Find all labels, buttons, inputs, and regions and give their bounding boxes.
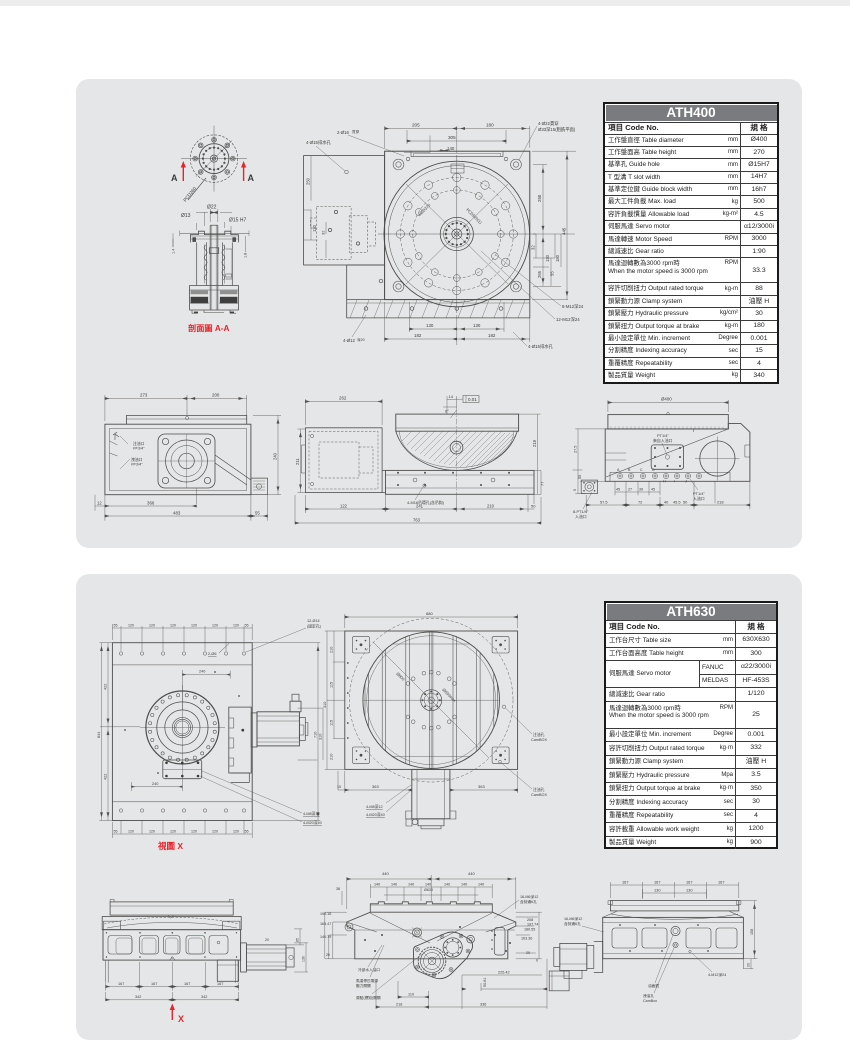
svg-text:PF3/4": PF3/4" [131, 463, 143, 467]
svg-text:844: 844 [97, 732, 101, 738]
svg-text:167: 167 [217, 982, 223, 986]
svg-text:167: 167 [686, 880, 693, 885]
svg-text:含刻通6孔: 含刻通6孔 [564, 921, 581, 926]
svg-text:130: 130 [302, 956, 306, 962]
svg-text:32: 32 [531, 245, 536, 250]
svg-text:CamBOX: CamBOX [531, 738, 548, 742]
svg-text:C: C [640, 468, 643, 472]
svg-text:32: 32 [321, 230, 326, 235]
svg-text:167: 167 [622, 880, 629, 885]
svg-text:140: 140 [444, 883, 450, 887]
svg-text:120: 120 [212, 830, 218, 834]
svg-text:211: 211 [295, 458, 300, 465]
svg-text:4-Ø15排水孔: 4-Ø15排水孔 [528, 343, 554, 350]
svg-text:218: 218 [717, 500, 724, 505]
svg-text:265: 265 [537, 270, 542, 278]
svg-text:壓力開關: 壓力開關 [356, 983, 371, 988]
svg-text:55: 55 [578, 475, 582, 479]
svg-text:Ø400: Ø400 [661, 397, 672, 402]
svg-text:A: A [248, 173, 255, 183]
svg-text:240: 240 [199, 670, 205, 674]
svg-text:45.5: 45.5 [673, 500, 681, 505]
svg-text:深20: 深20 [357, 337, 365, 342]
svg-text:2-Ø16: 2-Ø16 [337, 130, 350, 135]
svg-text:Ø15 H7: Ø15 H7 [229, 218, 246, 224]
svg-text:363: 363 [372, 784, 379, 789]
svg-text:140.79: 140.79 [320, 935, 331, 939]
svg-text:55: 55 [255, 511, 260, 516]
svg-text:4-Ø12: 4-Ø12 [343, 338, 356, 343]
svg-text:422: 422 [104, 684, 108, 690]
svg-text:363: 363 [478, 784, 485, 789]
svg-text:PCD260: PCD260 [182, 186, 197, 203]
svg-text:38: 38 [336, 887, 340, 891]
svg-text:14: 14 [449, 394, 454, 399]
svg-text:20: 20 [326, 953, 330, 957]
svg-text:注油口: 注油口 [133, 441, 145, 446]
svg-text:130: 130 [473, 323, 481, 328]
svg-text:55: 55 [114, 830, 118, 834]
svg-text:366: 366 [147, 501, 155, 506]
svg-text:57.5: 57.5 [600, 500, 608, 505]
svg-text:165.47: 165.47 [320, 922, 331, 926]
svg-text:4-M12深24: 4-M12深24 [708, 972, 726, 977]
svg-text:342: 342 [135, 995, 141, 999]
svg-text:110: 110 [408, 993, 414, 997]
svg-text:4-M20深40: 4-M20深40 [303, 820, 322, 825]
svg-text:CamBOX: CamBOX [531, 793, 548, 797]
svg-text:140: 140 [425, 883, 431, 887]
svg-text:20: 20 [526, 951, 530, 955]
svg-text:含刻通6孔: 含刻通6孔 [520, 899, 537, 904]
svg-text:16-M6深12: 16-M6深12 [564, 916, 582, 921]
svg-text:120: 120 [149, 830, 155, 834]
svg-text:15: 15 [337, 785, 341, 789]
svg-text:45: 45 [651, 488, 655, 492]
svg-text:440: 440 [468, 871, 475, 876]
svg-text:250: 250 [537, 194, 542, 202]
svg-text:Ø630: Ø630 [424, 888, 433, 892]
svg-text:4-M16吊環孔(含吊鈎): 4-M16吊環孔(含吊鈎) [407, 500, 445, 505]
svg-text:A: A [171, 173, 178, 183]
svg-text:12-M12深24: 12-M12深24 [556, 316, 580, 323]
svg-text:油面鏡: 油面鏡 [648, 983, 659, 988]
svg-text:219: 219 [532, 439, 537, 447]
svg-text:120: 120 [170, 830, 176, 834]
svg-text:710: 710 [314, 732, 318, 738]
svg-text:120: 120 [128, 830, 134, 834]
svg-text:305: 305 [448, 135, 456, 140]
svg-text:120: 120 [149, 624, 155, 628]
svg-text:225.42: 225.42 [498, 971, 510, 975]
svg-text:PF3/4": PF3/4" [133, 447, 145, 451]
svg-text:72: 72 [638, 500, 642, 505]
svg-text:I: I [674, 480, 675, 484]
svg-text:4-M8深16: 4-M8深16 [303, 811, 320, 816]
svg-text:167: 167 [184, 982, 190, 986]
svg-text:50: 50 [683, 500, 688, 505]
svg-text:1.8: 1.8 [244, 253, 248, 258]
svg-text:4-M8深12: 4-M8深12 [366, 804, 383, 809]
svg-text:120: 120 [191, 624, 197, 628]
svg-text:27: 27 [628, 488, 632, 492]
svg-text:X: X [178, 1014, 184, 1024]
svg-text:483: 483 [173, 511, 181, 516]
svg-text:CamBox: CamBox [643, 999, 657, 1003]
svg-text:77: 77 [540, 481, 545, 486]
svg-text:240: 240 [152, 782, 158, 786]
svg-text:140: 140 [461, 883, 467, 887]
svg-text:來自入油口: 來自入油口 [653, 438, 673, 443]
svg-text:85: 85 [296, 938, 300, 942]
svg-text:12: 12 [97, 501, 102, 506]
svg-text:422: 422 [104, 774, 108, 780]
svg-text:200: 200 [212, 393, 220, 398]
svg-text:PCD520(1): PCD520(1) [465, 207, 483, 225]
svg-text:205: 205 [412, 123, 420, 128]
svg-text:167: 167 [718, 880, 725, 885]
svg-text:120: 120 [233, 624, 239, 628]
svg-text:310: 310 [323, 702, 327, 708]
svg-text:Ø33深15(粗銑平面): Ø33深15(粗銑平面) [538, 126, 576, 133]
svg-text:140: 140 [478, 883, 484, 887]
svg-text:273: 273 [140, 393, 148, 398]
svg-text:120: 120 [233, 830, 239, 834]
svg-text:27.5: 27.5 [574, 446, 578, 453]
svg-text:120: 120 [212, 624, 218, 628]
svg-text:122: 122 [340, 504, 348, 509]
svg-text:336: 336 [480, 1003, 486, 1007]
svg-text:130: 130 [545, 254, 550, 262]
svg-text:貫穿: 貫穿 [352, 129, 360, 134]
svg-text:冷卻水入油口: 冷卻水入油口 [358, 967, 380, 972]
svg-text:18-M6深12: 18-M6深12 [520, 894, 538, 899]
svg-text:55: 55 [245, 624, 249, 628]
svg-text:39: 39 [639, 488, 643, 492]
svg-text:H: H [663, 480, 666, 484]
svg-text:182: 182 [414, 333, 422, 338]
svg-text:馬達停匹電源: 馬達停匹電源 [356, 978, 378, 983]
svg-text:洩油孔: 洩油孔 [643, 993, 654, 998]
svg-text:120: 120 [128, 624, 134, 628]
svg-text:J: J [685, 480, 687, 484]
svg-text:D: D [652, 468, 655, 472]
svg-text:250: 250 [306, 177, 311, 185]
svg-text:180: 180 [555, 254, 560, 262]
svg-text:190.16: 190.16 [320, 912, 331, 916]
svg-text:210: 210 [330, 754, 334, 760]
svg-text:20: 20 [265, 938, 269, 942]
svg-text:240: 240 [273, 452, 278, 460]
svg-text:8-M12深24: 8-M12深24 [562, 303, 584, 310]
svg-text:4-M20深40: 4-M20深40 [366, 812, 385, 817]
svg-text:55: 55 [245, 830, 249, 834]
svg-text:140: 140 [374, 883, 380, 887]
svg-text:Ø22: Ø22 [207, 205, 217, 211]
svg-text:130: 130 [426, 323, 434, 328]
svg-text:167: 167 [654, 880, 661, 885]
svg-text:197.74: 197.74 [527, 923, 538, 927]
svg-text:20: 20 [747, 963, 751, 967]
svg-text:40: 40 [664, 500, 669, 505]
svg-text:入油口: 入油口 [693, 496, 705, 501]
svg-text:入油口: 入油口 [575, 514, 587, 519]
svg-text:140: 140 [408, 883, 414, 887]
svg-text:210: 210 [487, 504, 495, 509]
svg-text:Ø800: Ø800 [395, 671, 406, 682]
svg-text:洩油口: 洩油口 [131, 457, 143, 462]
svg-text:6°: 6° [445, 409, 449, 414]
svg-text:130: 130 [686, 888, 693, 893]
svg-text:B: B [628, 468, 631, 472]
svg-text:120: 120 [170, 624, 176, 628]
svg-text:50.81: 50.81 [483, 977, 487, 987]
svg-text:注油孔: 注油孔 [533, 732, 545, 737]
svg-text:140: 140 [391, 883, 397, 887]
svg-text:55: 55 [550, 271, 555, 276]
svg-text:45: 45 [616, 488, 620, 492]
svg-text:218: 218 [396, 1003, 402, 1007]
svg-text:880: 880 [426, 611, 433, 616]
svg-text:182: 182 [488, 333, 496, 338]
svg-text:140: 140 [447, 146, 455, 151]
svg-text:130: 130 [654, 888, 661, 893]
svg-text:163.36: 163.36 [521, 937, 532, 941]
svg-text:445: 445 [562, 227, 567, 235]
svg-text:50: 50 [531, 504, 536, 509]
svg-text:158: 158 [750, 929, 754, 935]
svg-text:4-Ø15排水孔: 4-Ø15排水孔 [306, 139, 332, 146]
svg-text:1.4: 1.4 [172, 249, 176, 254]
svg-text:Ø630max: Ø630max [441, 687, 457, 703]
svg-text:763: 763 [413, 518, 421, 523]
svg-text:4-Ø22貫穿: 4-Ø22貫穿 [538, 120, 559, 127]
svg-text:262: 262 [339, 396, 347, 401]
svg-text:Ø13: Ø13 [181, 213, 191, 219]
svg-text:0.01: 0.01 [468, 397, 477, 402]
svg-text:120: 120 [191, 830, 197, 834]
svg-text:55: 55 [114, 624, 118, 628]
svg-text:115: 115 [330, 720, 334, 726]
svg-text:167: 167 [118, 982, 124, 986]
svg-text:0: 0 [536, 959, 538, 963]
svg-text:5: 5 [573, 489, 577, 491]
svg-text:剖面圖 A-A: 剖面圖 A-A [188, 323, 229, 333]
svg-text:視圖 X: 視圖 X [157, 841, 183, 851]
svg-text:440: 440 [382, 871, 389, 876]
svg-text:2-Ø6: 2-Ø6 [208, 652, 216, 656]
svg-text:130: 130 [312, 224, 317, 232]
svg-text:342: 342 [201, 995, 207, 999]
svg-text:115: 115 [330, 682, 334, 688]
svg-text:原點(標知)開關: 原點(標知)開關 [356, 995, 381, 1000]
svg-text:180: 180 [486, 123, 494, 128]
svg-text:12-Ø14: 12-Ø14 [307, 619, 320, 623]
svg-text:210: 210 [330, 647, 334, 653]
svg-text:180.55: 180.55 [524, 928, 535, 932]
svg-text:167: 167 [151, 982, 157, 986]
svg-text:208: 208 [527, 918, 533, 922]
svg-text:注油孔: 注油孔 [533, 787, 545, 792]
